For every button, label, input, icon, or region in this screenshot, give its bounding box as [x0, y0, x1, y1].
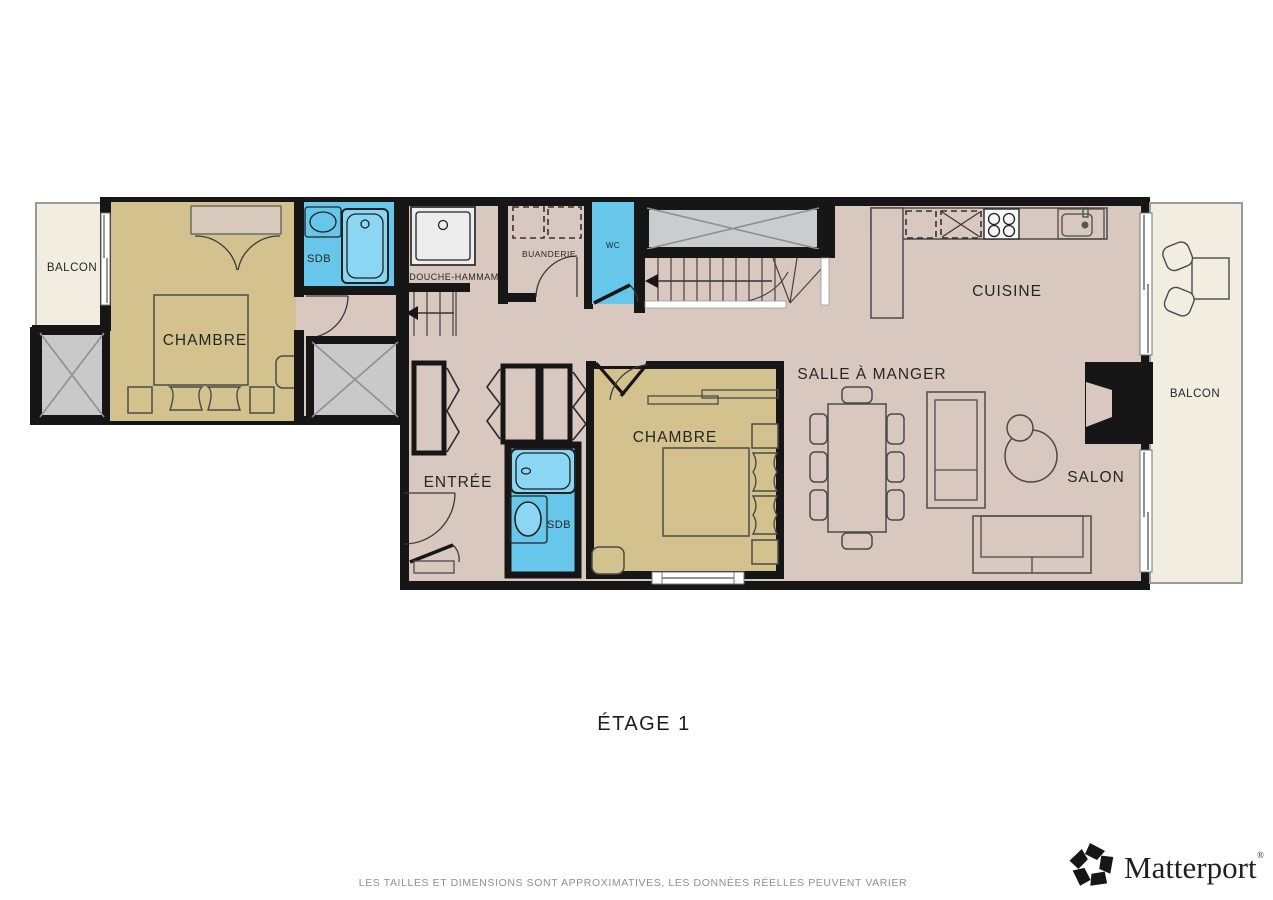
label-douche-hammam: DOUCHE-HAMMAM: [409, 272, 499, 282]
matterport-logo: Matterport ®: [1068, 843, 1264, 892]
label-sdb-1: SDB: [307, 253, 331, 265]
label-cuisine: CUISINE: [972, 283, 1042, 300]
matterport-wordmark: Matterport: [1124, 850, 1257, 885]
bedroom-1-right-wall-bottom: [294, 330, 304, 425]
label-entree: ENTRÉE: [424, 474, 493, 491]
sofa-vertical: [927, 392, 985, 508]
round-armchair-cushion: [1007, 415, 1033, 441]
fireplace: [1085, 362, 1153, 444]
dining-chair-l3: [810, 490, 827, 520]
disclaimer-text: LES TAILLES ET DIMENSIONS SONT APPROXIMA…: [359, 876, 907, 889]
shaft-1: [38, 331, 106, 419]
hall-closet-2: [541, 366, 570, 442]
shower-room-bottom-wall: [400, 283, 470, 292]
dining-chair-r2: [887, 452, 904, 482]
bedroom-1-right-wall-top: [294, 197, 304, 297]
label-salle-a-manger: SALLE À MANGER: [797, 366, 946, 383]
dining-chair-bottom: [842, 533, 872, 549]
floor-plan-page: BALCON CHAMBRE SDB DOUCHE-HAMMAM BUANDER…: [0, 0, 1273, 900]
bed-2-pillow-2: [753, 496, 777, 534]
sliding-door-lower: [1140, 450, 1152, 572]
kitchen-faucet: [1082, 222, 1089, 229]
matterport-pinwheel-icon: [1068, 843, 1118, 892]
stair-landing-strip: [645, 301, 786, 308]
label-chambre-1: CHAMBRE: [163, 332, 248, 349]
nightstand-1a: [128, 387, 152, 413]
stair-right-wall: [821, 197, 835, 258]
wc-room: [592, 197, 645, 313]
wc-floor: [592, 202, 634, 304]
bedroom-1-window: [100, 197, 111, 331]
bathroom-2: [508, 445, 578, 575]
label-sdb-2: SDB: [547, 519, 571, 531]
wall-thin-patch-left: [27, 201, 36, 327]
bed-1-pillow-right: [208, 387, 240, 410]
laundry-right-wall: [584, 197, 593, 309]
bed-1-pillow-left: [170, 387, 202, 410]
balcony-table: [1192, 258, 1229, 299]
armchair-bedroom-2: [592, 547, 624, 574]
nightstand-2b: [752, 540, 778, 564]
kitchen-island: [871, 208, 903, 318]
matterport-registered-mark: ®: [1257, 850, 1264, 860]
window-glass: [101, 213, 110, 305]
entry-wardrobe: [414, 363, 444, 453]
dining-chair-l2: [810, 452, 827, 482]
label-balcon-right: BALCON: [1170, 388, 1220, 400]
shaft-2: [310, 340, 400, 419]
laundry-bottom-wall: [504, 293, 536, 302]
dining-chair-r1: [887, 414, 904, 444]
bathroom-1: [294, 197, 406, 295]
bathroom-1-bottom-wall: [294, 286, 406, 295]
nightstand-2a: [752, 424, 778, 448]
bed-2: [663, 448, 749, 536]
label-buanderie: BUANDERIE: [522, 249, 576, 259]
sink-2-basin: [515, 502, 541, 536]
nightstand-1b: [250, 387, 274, 413]
label-wc: WC: [606, 241, 620, 250]
bedroom-2: [590, 357, 780, 575]
dining-chair-r3: [887, 490, 904, 520]
shower-tray: [411, 207, 475, 265]
label-salon: SALON: [1067, 469, 1125, 486]
hall-closet-1: [503, 366, 538, 442]
shower-room-right-wall: [498, 197, 508, 304]
bedroom-2-door-gap: [596, 357, 646, 366]
bedroom-2-window: [652, 572, 744, 584]
stair-void-bottom-wall: [641, 249, 827, 258]
hall-closets: [487, 366, 586, 442]
floor-plan-canvas: BALCON CHAMBRE SDB DOUCHE-HAMMAM BUANDER…: [0, 0, 1273, 900]
sliding-door-upper: [1140, 213, 1152, 355]
bedroom-1-closet: [191, 206, 281, 234]
bathroom-1-right-wall: [394, 197, 406, 295]
stair-edge-strip: [821, 258, 829, 305]
wall-thin-patch-top: [27, 193, 104, 202]
dining-chair-top: [842, 387, 872, 403]
label-chambre-2: CHAMBRE: [633, 429, 718, 446]
floor-title: ÉTAGE 1: [597, 712, 691, 735]
bedroom-1: [104, 202, 299, 421]
stair-void: [641, 197, 835, 258]
dining-table: [828, 404, 886, 532]
bathtub-2: [511, 449, 575, 493]
bed-2-pillow-1: [753, 453, 777, 491]
label-balcon-left: BALCON: [47, 262, 97, 274]
dining-chair-l1: [810, 414, 827, 444]
